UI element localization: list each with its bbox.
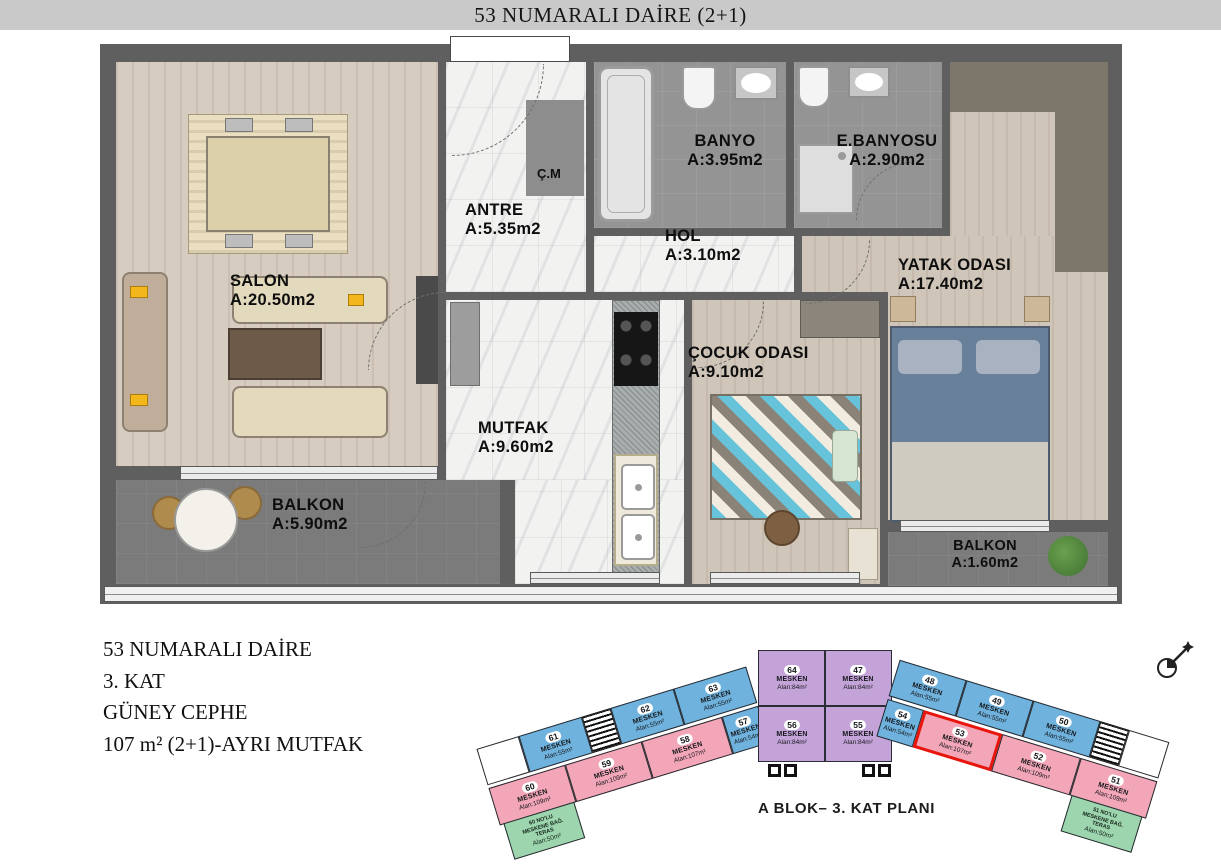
kitchen-sink-unit [614,454,658,566]
mutfak-label: MUTFAKA:9.60m2 [478,419,554,458]
balkon-right-label: BALKONA:1.60m2 [915,538,1055,572]
washbasin [848,66,890,98]
window-yatak [900,520,1050,532]
block-plan-caption: A BLOK– 3. KAT PLANI [758,800,935,817]
wardrobe [800,300,880,338]
salon-label: SALONA:20.50m2 [230,272,315,311]
round-rug [764,510,800,546]
sofa-bottom [232,386,388,438]
nightstand [890,296,916,322]
page: 53 NUMARALI DAİRE (2+1) [0,0,1221,864]
double-bed [890,326,1050,522]
elevator-icon [862,764,891,777]
unit-47: 47 MESKEN Alan:84m² [825,651,891,706]
cushion [130,286,148,298]
block-wing-right: 48 MESKEN Alan:55m² 49 MESKEN Alan:55m² … [876,660,1169,819]
apartment-info: 53 NUMARALI DAİRE 3. KAT GÜNEY CEPHE 107… [103,634,363,760]
balcony-table [174,488,238,552]
dining-chair [225,118,253,132]
fridge [450,302,480,386]
closet-cm [526,100,584,196]
unit-56: 56 MESKEN Alan:84m² [759,706,825,761]
toilet [798,66,830,108]
parapet-band [104,586,1118,602]
stove [614,312,658,386]
bathtub [598,66,654,222]
yatak-label: YATAK ODASIA:17.40m2 [898,256,1011,295]
toilet [682,66,716,110]
balkon-left-label: BALKONA:5.90m2 [272,496,348,535]
block-key-plan: 61 MESKEN Alan:55m² 62 MESKEN Alan:55m² … [480,640,1190,862]
page-title: 53 NUMARALI DAİRE (2+1) [474,3,746,28]
window-mutfak [530,572,660,584]
cushion [348,294,364,306]
dining-chair [225,234,253,248]
dining-table [206,136,330,232]
entrance-landing [450,36,570,62]
info-line: 107 m² (2+1)-AYRI MUTFAK [103,729,363,761]
window-salon [180,466,438,480]
washbasin [734,66,778,100]
info-line: 53 NUMARALI DAİRE [103,634,363,666]
antre-label: ANTREA:5.35m2 [465,201,541,240]
elevator-icon [768,764,797,777]
dining-chair [285,234,313,248]
block-middle-cluster: 64 MESKEN Alan:84m² 47 MESKEN Alan:84m² … [758,650,892,762]
cushion [130,394,148,406]
dining-chair [285,118,313,132]
info-line: GÜNEY CEPHE [103,697,363,729]
window-cocuk [710,572,860,584]
floor-plan: SALONA:20.50m2 ANTREA:5.35m2 Ç.M BANYOA:… [100,44,1122,604]
coffee-table [228,328,322,380]
north-compass-icon [1152,640,1196,689]
nightstand [1024,296,1050,322]
pillow [832,430,858,482]
title-bar: 53 NUMARALI DAİRE (2+1) [0,0,1221,30]
hol-label: HOLA:3.10m2 [665,227,741,266]
unit-64: 64 MESKEN Alan:84m² [759,651,825,706]
ebanyosu-label: E.BANYOSUA:2.90m2 [822,132,952,171]
block-wing-left: 61 MESKEN Alan:55m² 62 MESKEN Alan:55m² … [476,667,769,826]
cocuk-label: ÇOCUK ODASIA:9.10m2 [688,344,809,383]
info-line: 3. KAT [103,666,363,698]
cm-label: Ç.M [537,166,561,181]
banyo-label: BANYOA:3.95m2 [660,132,790,171]
shaft-block-right [1055,62,1108,272]
